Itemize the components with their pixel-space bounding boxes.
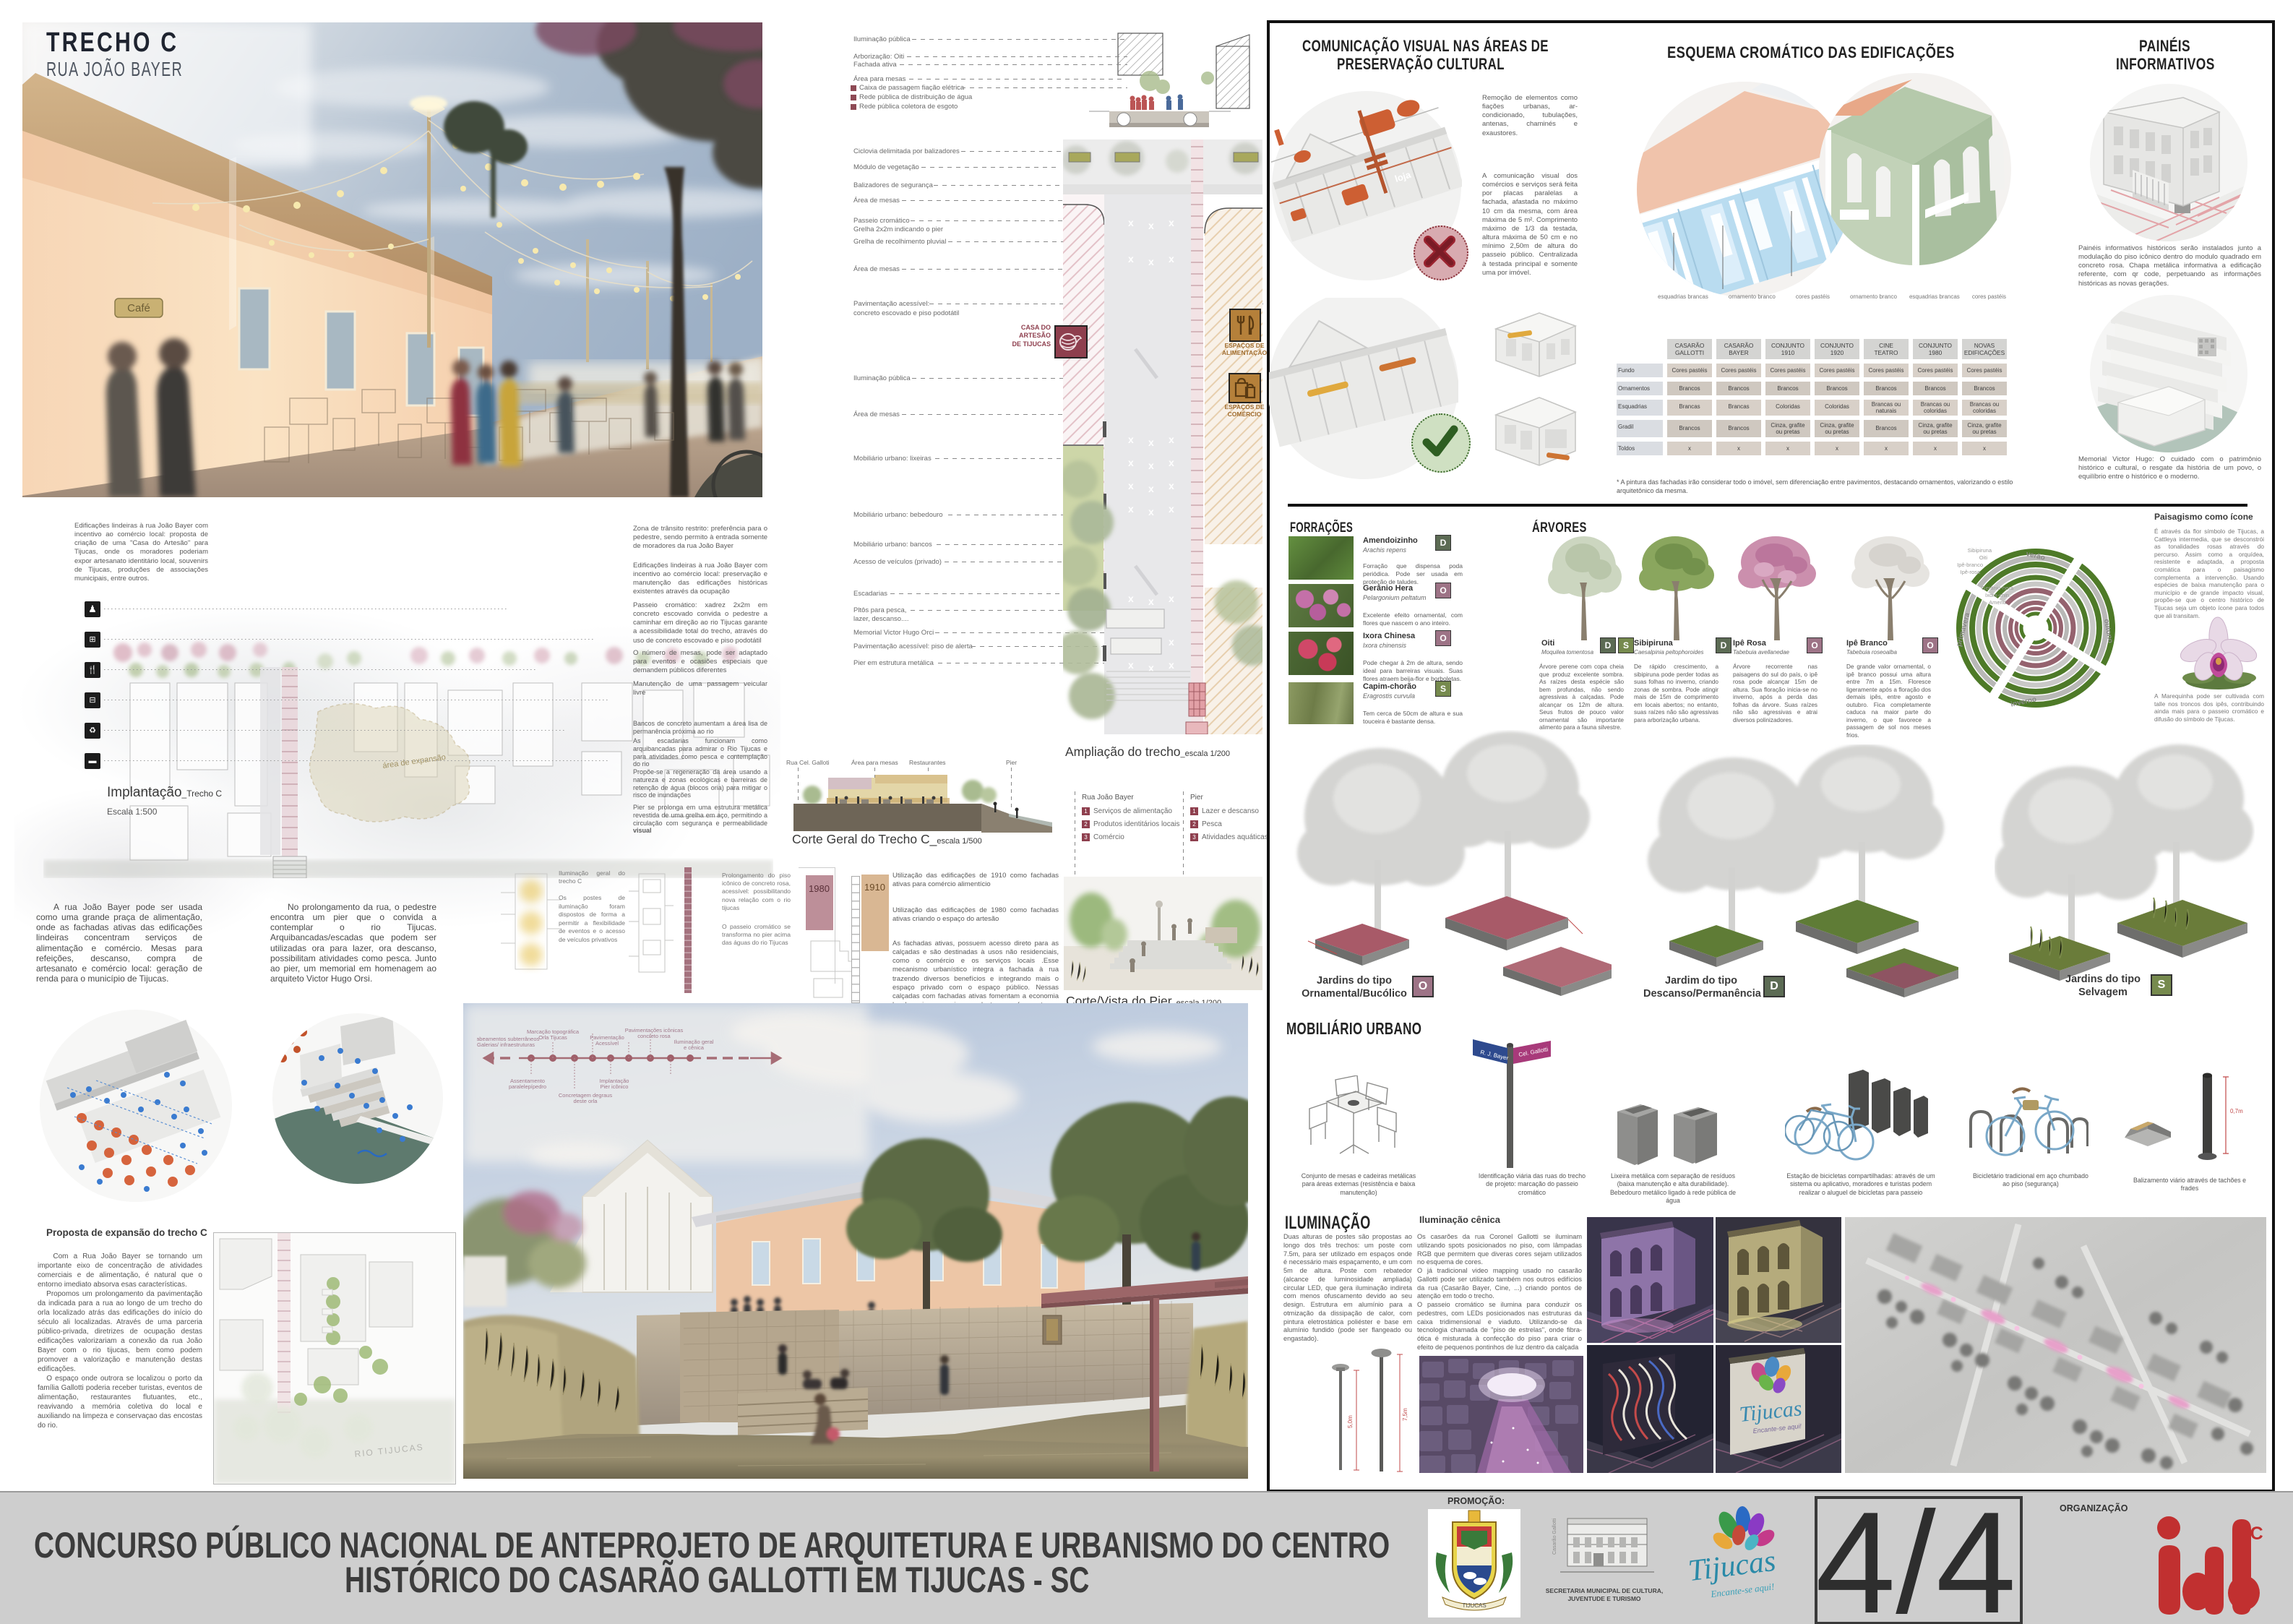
svg-text:7,5m: 7,5m	[1402, 1408, 1408, 1421]
svg-text:Sibipiruna: Sibipiruna	[1968, 547, 1992, 554]
svg-text:x: x	[1128, 593, 1134, 604]
svg-text:x: x	[1169, 636, 1174, 648]
svg-text:x: x	[1128, 659, 1134, 671]
svg-text:Ipê-rosa: Ipê-rosa	[1960, 569, 1980, 575]
svg-text:deste orla: deste orla	[574, 1098, 598, 1104]
svg-text:Café: Café	[127, 302, 150, 314]
svg-text:x: x	[1169, 503, 1174, 515]
svg-text:x: x	[1148, 596, 1154, 607]
svg-text:x: x	[1128, 253, 1134, 265]
svg-text:x: x	[1169, 480, 1174, 491]
svg-text:Pier icônico: Pier icônico	[601, 1083, 629, 1090]
svg-text:x: x	[1169, 457, 1174, 468]
svg-text:x: x	[1169, 217, 1174, 228]
svg-text:5,0m: 5,0m	[1347, 1415, 1354, 1428]
svg-text:x: x	[1128, 480, 1134, 491]
svg-text:Ipê-branco: Ipê-branco	[1957, 562, 1983, 568]
svg-text:x: x	[1128, 217, 1134, 228]
svg-text:Oiti: Oiti	[1979, 554, 1988, 561]
svg-text:Acessível: Acessível	[595, 1040, 619, 1047]
svg-text:x: x	[1169, 593, 1174, 604]
svg-text:x: x	[1169, 434, 1174, 445]
svg-text:x: x	[1128, 457, 1134, 468]
svg-text:Galerias/ infraestruturas: Galerias/ infraestruturas	[477, 1041, 535, 1048]
svg-text:SC: SC	[2238, 1524, 2263, 1544]
svg-text:Gerânio-hera: Gerânio-hera	[1982, 585, 2014, 591]
svg-text:x: x	[1128, 503, 1134, 515]
svg-text:e cênica: e cênica	[684, 1044, 705, 1051]
svg-text:TIJUCAS: TIJUCAS	[1462, 1602, 1486, 1609]
svg-text:x: x	[1148, 662, 1154, 674]
svg-text:x: x	[1148, 460, 1154, 471]
svg-text:x: x	[1148, 256, 1154, 267]
svg-text:x: x	[1169, 253, 1174, 265]
svg-text:x: x	[1128, 434, 1134, 445]
svg-text:0,7m: 0,7m	[2230, 1108, 2243, 1114]
svg-text:x: x	[1148, 483, 1154, 494]
svg-text:x: x	[1148, 506, 1154, 517]
svg-text:concreto rosa: concreto rosa	[637, 1033, 671, 1039]
svg-text:x: x	[1148, 437, 1154, 448]
svg-text:x: x	[1169, 659, 1174, 671]
svg-text:Amend.: Amend.	[1989, 599, 2008, 606]
svg-text:Casarão Gallotti: Casarão Gallotti	[1552, 1518, 1557, 1555]
svg-text:Ixora-chin.: Ixora-chin.	[1985, 592, 2010, 598]
svg-text:x: x	[1148, 220, 1154, 231]
svg-text:Orla Tijucas: Orla Tijucas	[538, 1034, 567, 1041]
svg-text:paralelepípedro: paralelepípedro	[509, 1083, 546, 1090]
